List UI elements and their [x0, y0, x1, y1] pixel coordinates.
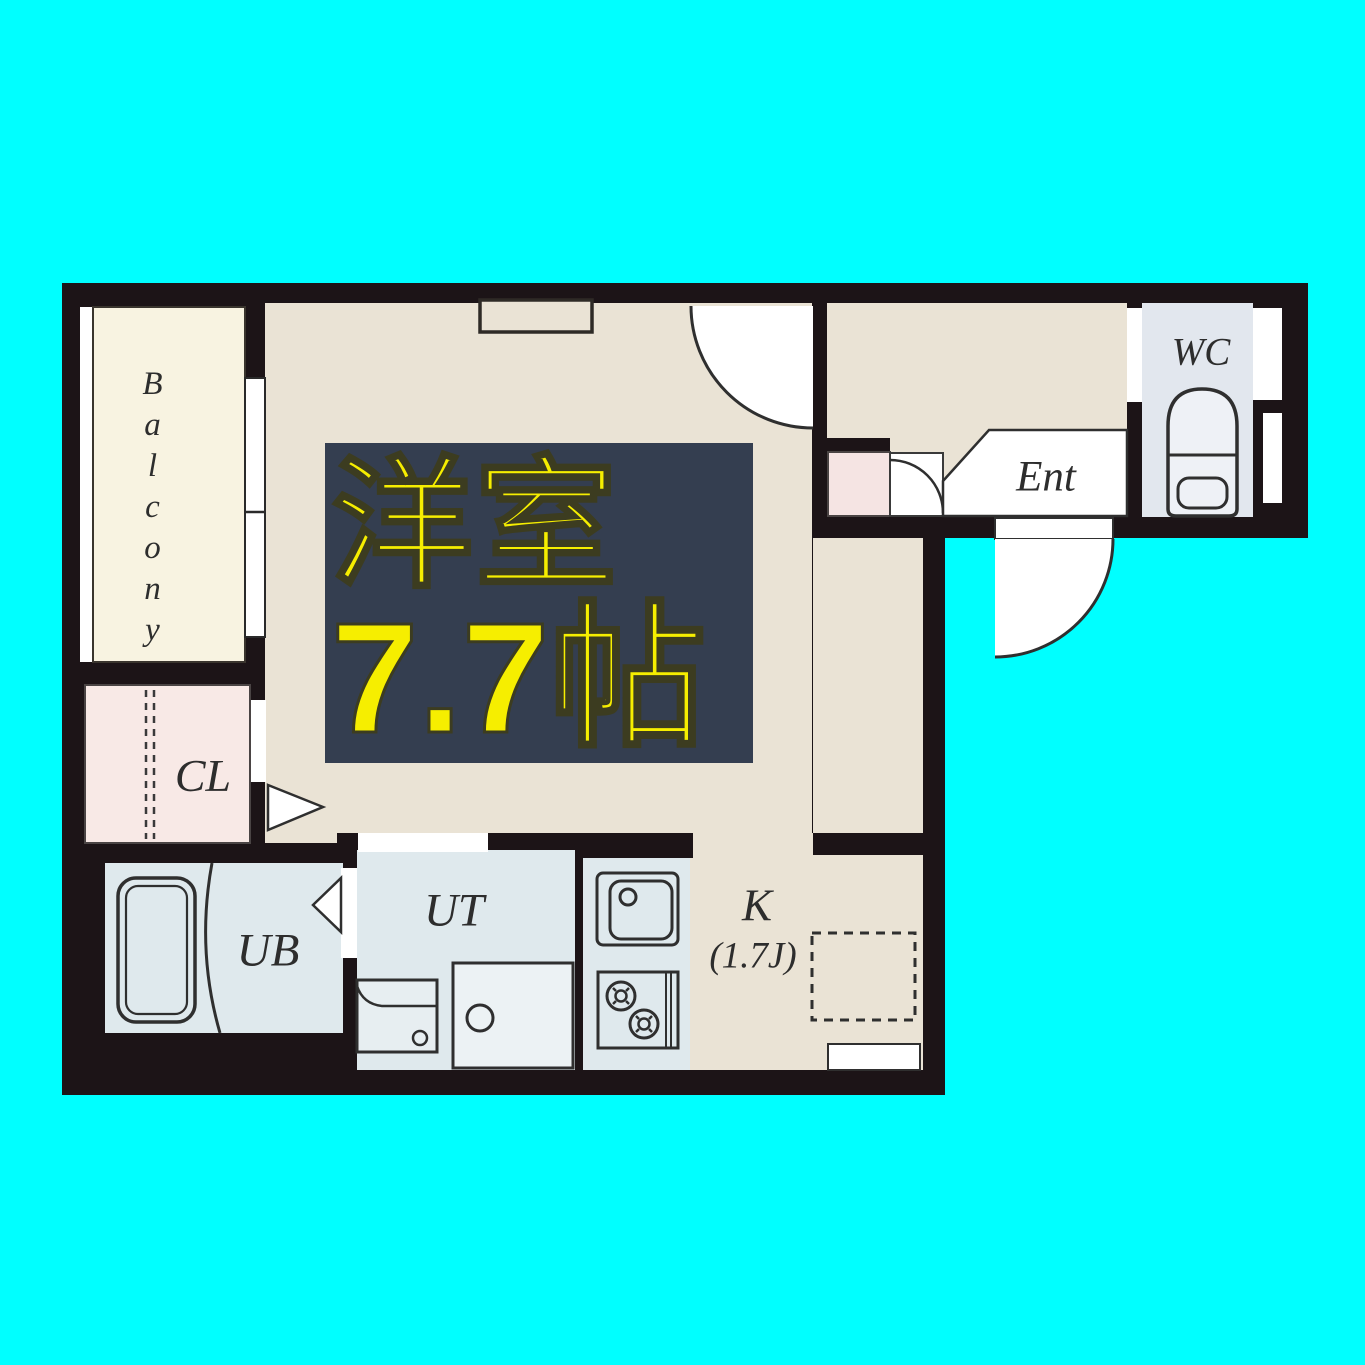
- kitchen-label: K: [742, 884, 772, 929]
- wall-stub-left-of-utility: [337, 833, 358, 865]
- balcony-edge-line: [80, 307, 93, 662]
- wall-stub-right-of-kitchen: [813, 833, 925, 855]
- floor-plan-page: Balcony CL UB UT K (1.7J) Ent WC 洋室 7.7帖: [0, 0, 1365, 1365]
- room-size-badge: 洋室 7.7帖: [325, 443, 753, 763]
- front-door-swing: [995, 539, 1113, 657]
- balcony-label: Balcony: [136, 366, 169, 653]
- closet-label: CL: [175, 753, 231, 799]
- badge-room-name: 洋室: [331, 451, 753, 600]
- main-room-floor-right: [813, 538, 923, 843]
- closet-door-gap: [251, 700, 266, 782]
- badge-room-size: 7.7帖: [331, 600, 753, 757]
- wc-label: WC: [1172, 333, 1231, 372]
- unit-bath-floor: [105, 863, 343, 1033]
- washer-pan-icon: [453, 963, 573, 1068]
- wall-stub-entrance: [820, 438, 890, 452]
- bottom-wall-vent: [828, 1044, 920, 1070]
- unit-bath-door-gap: [341, 868, 357, 958]
- wc-right-window: [1253, 308, 1282, 400]
- wc-door-gap: [1127, 308, 1142, 402]
- balcony-window: [245, 378, 265, 637]
- utility-opening-threshold: [358, 833, 488, 852]
- entrance-step-pink: [828, 452, 890, 516]
- main-room-top-window: [480, 300, 592, 332]
- kitchen-size-label: (1.7J): [709, 938, 796, 975]
- front-door-leaf: [995, 518, 1113, 539]
- wc-right-window-slim: [1263, 413, 1282, 503]
- utility-label: UT: [424, 888, 484, 935]
- unit-bath-label: UB: [237, 928, 300, 975]
- entrance-label: Ent: [1016, 456, 1076, 499]
